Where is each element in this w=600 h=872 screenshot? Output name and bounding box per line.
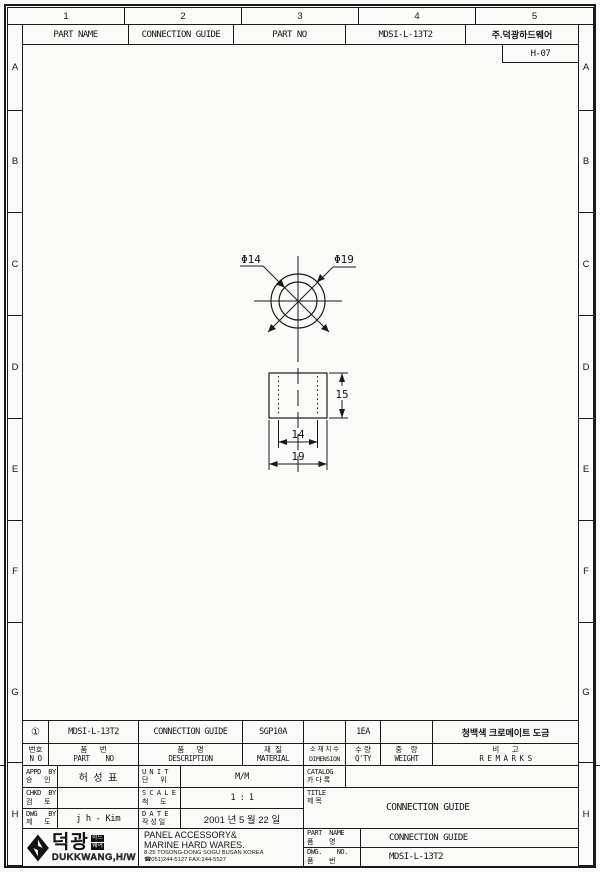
row-letter-left-F: F bbox=[7, 520, 23, 623]
appd-by-value: 허 성 표 bbox=[57, 765, 139, 788]
parts-header-material: 재 질MATERIAL bbox=[242, 743, 304, 766]
chkd-by-value bbox=[57, 787, 139, 809]
company-line2: MARINE HARD WARES. bbox=[144, 841, 303, 851]
ruler-column-3: 3 bbox=[241, 7, 359, 25]
ruler-label: 4 bbox=[414, 11, 419, 22]
catalog-label: CATALOG카 다 록 bbox=[303, 765, 346, 788]
row-letter-left-H: H bbox=[7, 762, 23, 866]
row-letter-left-B: B bbox=[7, 110, 23, 213]
parts-header-remarks: 비 고R E M A R K S bbox=[432, 743, 579, 766]
ruler-label: 1 bbox=[63, 11, 68, 22]
parts-row-no: ① bbox=[22, 720, 49, 744]
company-phone: ☎051)244-5127 FAX:244-5527 bbox=[144, 857, 303, 864]
row-letter-right-D: D bbox=[578, 315, 594, 419]
top-header-part-name-value: CONNECTION GUIDE bbox=[128, 24, 234, 45]
parts-row-dimension bbox=[303, 720, 346, 744]
scale-value: 1 : 1 bbox=[180, 787, 304, 809]
dwg-by-label: DWG BY제 도 bbox=[22, 808, 58, 829]
row-letter-right-H: H bbox=[578, 762, 594, 866]
parts-row-qty: 1EA bbox=[345, 720, 381, 744]
dwg-by-value: j h - Kim bbox=[57, 808, 139, 829]
parts-row-weight bbox=[380, 720, 433, 744]
row-letter-right-A: A bbox=[578, 24, 594, 111]
ruler-column-1: 1 bbox=[7, 7, 125, 25]
parts-row-material: SGP10A bbox=[242, 720, 304, 744]
row-letter-right-G: G bbox=[578, 622, 594, 763]
logo-korean-text: 덕광 bbox=[52, 833, 89, 852]
parts-row-part-no: MDSI-L-13T2 bbox=[48, 720, 139, 744]
parts-header-part-no: 품 번PART NO bbox=[48, 743, 139, 766]
top-header-part-no-label: PART NO bbox=[233, 24, 346, 45]
top-header-part-no-value: MDSI-L-13T2 bbox=[345, 24, 466, 45]
dwg-no-label: DWG. NO.품 번 bbox=[303, 847, 361, 867]
catalog-value bbox=[345, 765, 579, 788]
dwg-no-value: MDSI-L-13T2 bbox=[360, 847, 579, 867]
logo-cell: 덕광 하드 웨어 DUKKWANG,H/W bbox=[22, 828, 139, 867]
dia-inner-label: Φ14 bbox=[241, 253, 261, 266]
company-info-cell: PANEL ACCESSORY& MARINE HARD WARES. 8-25… bbox=[138, 828, 304, 867]
part-name-value: CONNECTION GUIDE bbox=[360, 828, 579, 848]
unit-value: M/M bbox=[180, 765, 304, 788]
unit-label: U N I T단 위 bbox=[138, 765, 181, 788]
parts-row-remarks: 청백색 크로메이트 도금 bbox=[432, 720, 579, 744]
row-letter-left-A: A bbox=[7, 24, 23, 111]
dim-inner-width-label: 14 bbox=[291, 428, 305, 441]
ruler-label: 5 bbox=[532, 11, 537, 22]
row-letter-left-G: G bbox=[7, 622, 23, 763]
row-letter-left-D: D bbox=[7, 315, 23, 419]
ruler-label: 3 bbox=[297, 11, 302, 22]
date-label: D A T E작 성 일 bbox=[138, 808, 181, 829]
row-letter-right-B: B bbox=[578, 110, 594, 213]
row-letter-right-C: C bbox=[578, 212, 594, 316]
chkd-by-label: CHKD BY검 토 bbox=[22, 787, 58, 809]
part-drawing: Φ14 Φ19 15 14 19 bbox=[22, 45, 578, 720]
title-value: CONNECTION GUIDE bbox=[386, 802, 470, 813]
dim-outer-width-label: 19 bbox=[291, 450, 304, 463]
dukkwang-logo-icon bbox=[27, 832, 49, 864]
parts-header-no: 번호N O bbox=[22, 743, 49, 766]
ruler-column-4: 4 bbox=[358, 7, 476, 25]
parts-header-qty: 수 량Q'TY bbox=[345, 743, 381, 766]
title-cell: TITLE 제 목 CONNECTION GUIDE bbox=[303, 787, 579, 829]
right-trim-mark bbox=[594, 765, 600, 766]
top-header-part-name-label: PART NAME bbox=[22, 24, 129, 45]
scale-label: S C A L E척 도 bbox=[138, 787, 181, 809]
logo-english-text: DUKKWANG,H/W bbox=[52, 852, 136, 863]
date-value: 2001 년 5 월 22 일 bbox=[180, 808, 304, 829]
left-trim-mark bbox=[0, 765, 6, 766]
row-letter-left-E: E bbox=[7, 418, 23, 521]
dim-height-label: 15 bbox=[335, 388, 348, 401]
top-header-company-name: 주.덕광하드웨어 bbox=[465, 24, 579, 45]
appd-by-label: APPD BY승 인 bbox=[22, 765, 58, 788]
ruler-column-2: 2 bbox=[124, 7, 242, 25]
ruler-column-5: 5 bbox=[475, 7, 594, 25]
row-letter-right-E: E bbox=[578, 418, 594, 521]
row-letter-left-C: C bbox=[7, 212, 23, 316]
parts-row-description: CONNECTION GUIDE bbox=[138, 720, 243, 744]
drawing-sheet: 1 2 3 4 5 A B C D E F G H A B C D E F G … bbox=[0, 0, 600, 872]
parts-header-description: 품 명DESCRIPTION bbox=[138, 743, 243, 766]
title-label: TITLE 제 목 bbox=[307, 790, 326, 805]
parts-header-weight: 중 량WEIGHT bbox=[380, 743, 433, 766]
dia-outer-label: Φ19 bbox=[334, 253, 354, 266]
part-name-label: PART NAME품 명 bbox=[303, 828, 361, 848]
row-letter-right-F: F bbox=[578, 520, 594, 623]
logo-korean-sub: 하드 웨어 bbox=[91, 835, 104, 850]
parts-header-dimension: 소 재 치 수DIMENSION bbox=[303, 743, 346, 766]
ruler-label: 2 bbox=[180, 11, 185, 22]
